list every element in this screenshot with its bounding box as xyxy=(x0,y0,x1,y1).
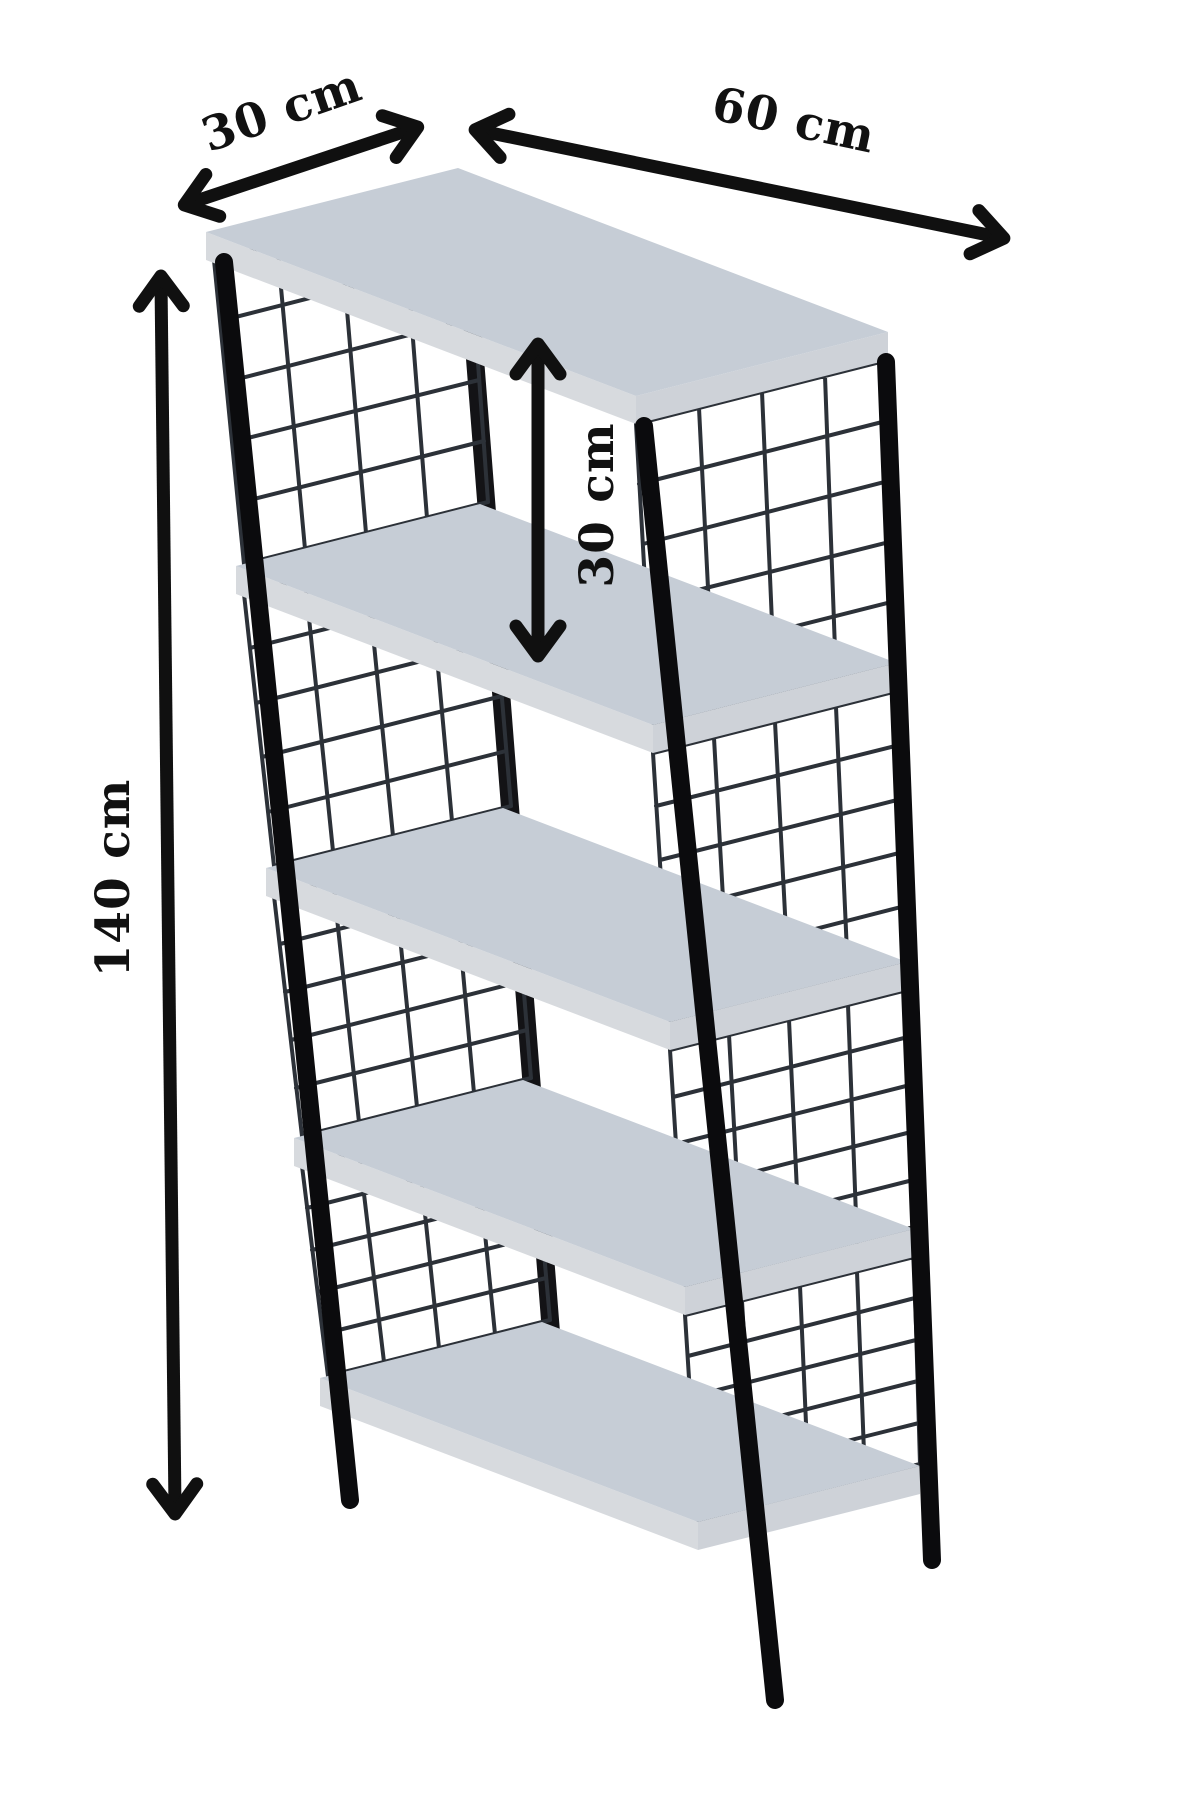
dimension-label-width: 60 cm xyxy=(707,77,880,165)
product-dimension-diagram: 30 cm 60 cm 30 cm 140 cm xyxy=(0,0,1200,1800)
dimension-label-shelf-spacing: 30 cm xyxy=(570,422,625,587)
dimension-label-height: 140 cm xyxy=(86,779,141,978)
shelf-2 xyxy=(236,504,897,753)
shelf-4 xyxy=(294,1080,914,1315)
shelf-unit xyxy=(206,168,932,1700)
shelf-5 xyxy=(320,1322,920,1550)
dimension-arrow-height xyxy=(161,282,175,1508)
shelves xyxy=(206,168,920,1550)
shelf-diagram-canvas: 30 cm 60 cm 30 cm 140 cm xyxy=(0,0,1200,1800)
shelf-1 xyxy=(206,168,888,424)
shelf-3 xyxy=(266,808,907,1050)
